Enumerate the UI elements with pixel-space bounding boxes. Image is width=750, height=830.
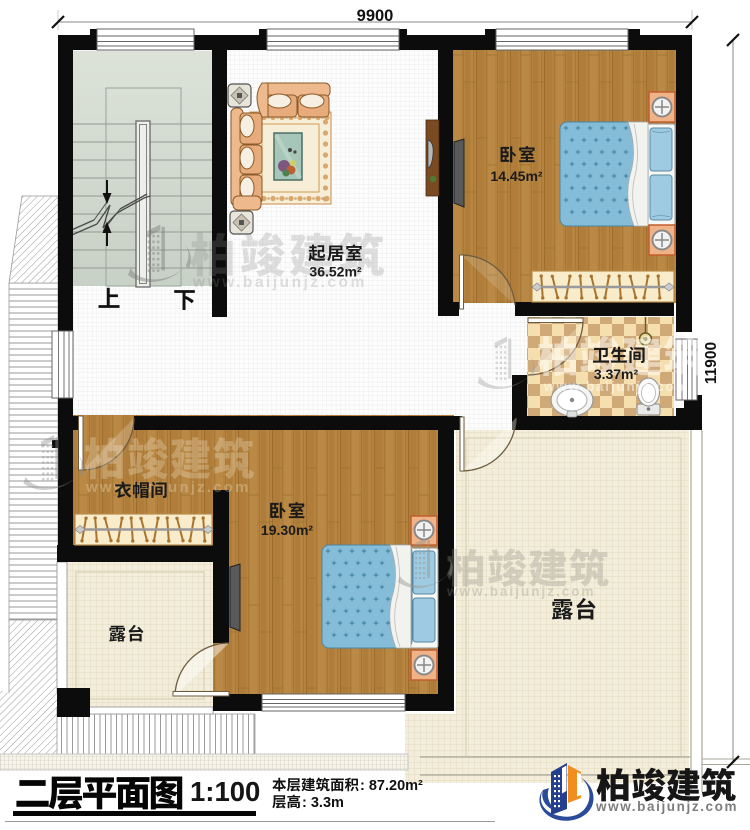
svg-text:11900: 11900 xyxy=(703,342,720,384)
svg-text:www.baijunjz.com: www.baijunjz.com xyxy=(595,799,738,814)
svg-text:19.30m²: 19.30m² xyxy=(261,522,313,538)
svg-text:9900: 9900 xyxy=(357,7,394,25)
svg-text:1:100: 1:100 xyxy=(190,776,260,807)
svg-text:www.baijunjz.com: www.baijunjz.com xyxy=(85,479,251,496)
svg-text:: 87.20m²: : 87.20m² xyxy=(360,778,423,794)
svg-text:www.baijunjz.com: www.baijunjz.com xyxy=(446,584,596,599)
svg-text:: 3.3m: : 3.3m xyxy=(302,795,344,811)
svg-text:3.37m²: 3.37m² xyxy=(594,366,639,382)
svg-text:36.52m²: 36.52m² xyxy=(309,264,361,280)
svg-text:14.45m²: 14.45m² xyxy=(490,168,542,184)
